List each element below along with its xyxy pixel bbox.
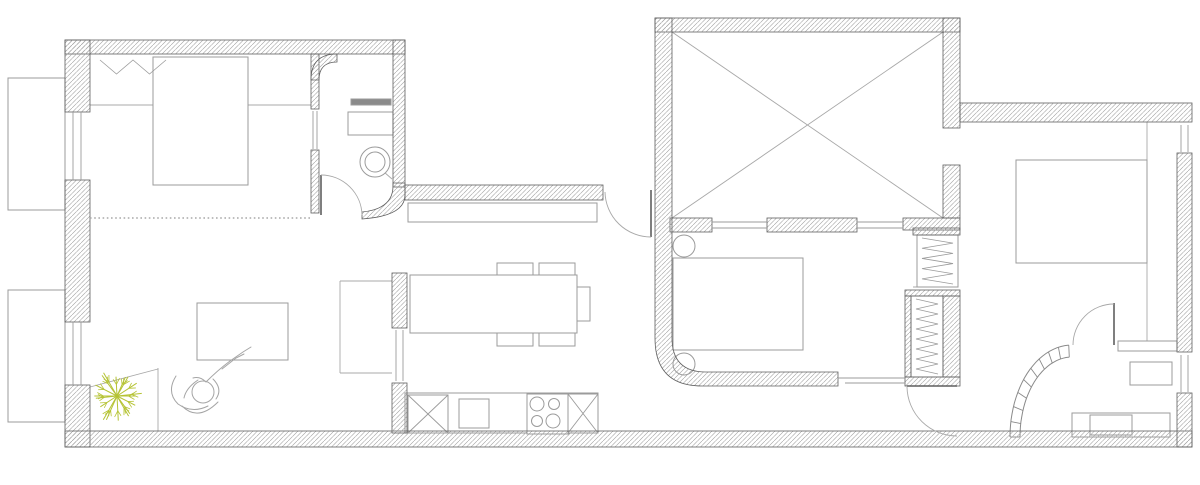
chair-2 bbox=[539, 263, 575, 276]
glass-block-wall-tick-2 bbox=[1013, 407, 1022, 411]
glass-block-wall-tick-9 bbox=[1069, 345, 1070, 357]
glass-block-wall-inner bbox=[1020, 357, 1069, 437]
wall-kitchen-divider-upper bbox=[392, 273, 407, 328]
dining-table bbox=[410, 275, 577, 333]
wall-patio-bottom-b bbox=[767, 218, 857, 232]
wall-bathroom1-curved-end bbox=[362, 183, 405, 219]
bed-2 bbox=[673, 258, 803, 350]
plant-twig-5-1 bbox=[111, 410, 112, 416]
wall-left-middle bbox=[65, 180, 90, 322]
wall-top-left-block bbox=[65, 40, 405, 54]
door-bathroom1-swing-arc bbox=[321, 175, 362, 215]
floor-plan-canvas bbox=[0, 0, 1200, 485]
vanity-1 bbox=[348, 112, 393, 135]
wall-left-upper bbox=[65, 40, 90, 112]
wall-right-upper bbox=[1177, 153, 1192, 352]
chair-1 bbox=[497, 263, 533, 276]
wall-closet2-right bbox=[943, 296, 960, 377]
tv-bench bbox=[197, 303, 288, 360]
wall-right-lower bbox=[1177, 393, 1192, 447]
glass-block-wall-tick-1 bbox=[1011, 422, 1021, 424]
wall-patio-right-lower bbox=[943, 165, 960, 218]
glass-block-wall-tick-5 bbox=[1031, 368, 1038, 377]
wall-closet2-bottom bbox=[905, 377, 960, 386]
burner-4 bbox=[546, 414, 560, 428]
chair-5 bbox=[577, 287, 590, 321]
glass-block-wall-tick-4 bbox=[1024, 380, 1032, 387]
door-hall-swing-arc bbox=[907, 387, 957, 436]
person-on-lounger-head bbox=[192, 381, 214, 403]
plant-branch-4 bbox=[117, 396, 118, 421]
bed-1 bbox=[153, 57, 248, 185]
wall-bottom bbox=[65, 431, 1192, 447]
balcony-2 bbox=[8, 290, 65, 422]
burner-1 bbox=[530, 397, 544, 411]
wall-bathroom1-right bbox=[393, 40, 405, 187]
bed-3 bbox=[1016, 160, 1147, 263]
chair-3 bbox=[497, 333, 533, 346]
chair-4 bbox=[539, 333, 575, 346]
door-entry-swing-arc bbox=[605, 192, 651, 237]
glass-block-wall-tick-3 bbox=[1018, 392, 1027, 398]
plant-twig-4-0 bbox=[115, 411, 118, 417]
floor-plan-page bbox=[0, 0, 1200, 485]
toilet-inner bbox=[365, 152, 385, 172]
glass-block-wall-tick-7 bbox=[1048, 352, 1052, 363]
counter-shelf bbox=[408, 203, 597, 222]
wall-closet2-top bbox=[905, 290, 960, 296]
person-on-lounger-part-3 bbox=[206, 361, 230, 382]
cabinet-row bbox=[1118, 341, 1177, 351]
plant-twig-13-0 bbox=[116, 378, 119, 384]
burner-2 bbox=[549, 399, 560, 410]
glass-block-wall-tick-6 bbox=[1039, 359, 1044, 369]
kitchen-sink bbox=[459, 399, 489, 428]
burner-3 bbox=[532, 416, 543, 427]
door-bathroom2-swing-arc bbox=[1073, 304, 1114, 345]
wall-closet1-top bbox=[913, 228, 960, 235]
wall-kitchen-top bbox=[405, 185, 603, 200]
wall-patio-top bbox=[655, 18, 960, 32]
balcony-1 bbox=[8, 78, 65, 210]
glass-block-wall-tick-8 bbox=[1058, 347, 1060, 359]
wall-closet2-left bbox=[905, 296, 911, 377]
plant-twig-0-0 bbox=[128, 396, 134, 400]
wall-bedroom3-top bbox=[960, 103, 1192, 122]
plant-twig-14-1 bbox=[121, 379, 122, 385]
shelf-niche bbox=[351, 99, 391, 105]
wall-bathroom1-divider-lower bbox=[311, 150, 319, 213]
nightstand-1 bbox=[673, 235, 695, 257]
wall-patio-right-upper bbox=[943, 18, 960, 128]
person-on-lounger-part-2 bbox=[182, 402, 218, 413]
wall-patio-bottom-a bbox=[670, 218, 712, 232]
wall-kitchen-divider-lower bbox=[392, 383, 407, 433]
vanity-2 bbox=[1130, 362, 1172, 385]
